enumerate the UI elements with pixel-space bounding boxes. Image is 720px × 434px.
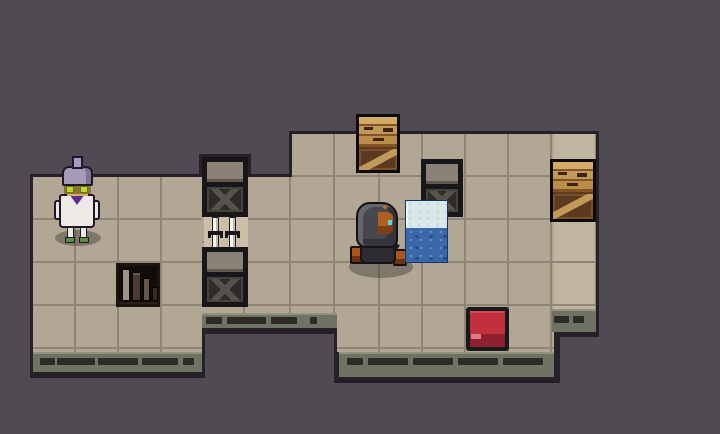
wizard-hair-bun [72,156,83,169]
glasses-lens [80,186,88,193]
wall-vent-dash [573,316,584,323]
swords[interactable] [208,217,242,248]
hood-button [383,205,387,209]
crate-diagonal-brace [553,194,593,219]
wall-vent-dash [206,317,222,324]
crate-lower-panel [553,194,593,219]
ice-highlight [406,202,408,226]
crate-lower-panel [359,149,397,170]
sword-guard [225,231,240,235]
wall-vent-dash [458,358,498,365]
book-spine [132,272,141,301]
water-body [406,228,447,262]
crate-knot [558,172,567,175]
wizard-shoe [65,237,75,243]
button-highlight [471,334,481,339]
wall-vent-dash [368,358,408,365]
bookshelf[interactable] [116,263,160,307]
book-spine [152,287,158,301]
sword-guard [208,231,223,235]
floor-mid-notch [248,177,292,313]
floor-step-column [292,134,337,313]
wooden-crate-top[interactable] [356,114,400,173]
crate-lid [207,162,243,182]
button-top-face [470,311,505,334]
glasses-lens [66,186,74,193]
wall-vent-dash [227,317,266,324]
crate-x-panel [207,187,243,212]
player-eye [388,220,392,225]
wooden-crate-right[interactable] [550,159,596,222]
crate-knot [364,127,373,130]
water-block[interactable] [405,200,448,263]
wall-vent-dash [554,316,569,323]
wall-vent-dash [57,358,95,365]
sword-icon [212,217,219,248]
crate-knot [383,128,393,132]
book-spine [143,278,150,301]
wall-vent-dash [310,317,317,324]
wizard-glasses [64,185,91,194]
crate-knot [567,183,578,186]
wall-vent-dash [98,358,138,365]
wall-vent-dash [503,358,543,365]
crate-x-panel [207,277,243,302]
strip-corridor [202,313,337,328]
dark-crate-top[interactable] [202,157,248,217]
wall-vent-dash [347,358,363,365]
sprite-shadow [55,230,101,246]
wall-vent-dash [413,358,453,365]
wall-vent-dash [271,317,297,324]
crate-planks [553,162,593,192]
strip-left-room [33,352,202,372]
strip-main-room [339,352,554,377]
wall-vent-dash [183,358,194,365]
sword-icon [229,217,236,248]
crate-diagonal-brace [359,149,397,170]
crate-knot [373,138,384,141]
strip-right-column [552,309,596,332]
red-button[interactable] [466,307,509,351]
wizard-hair [62,166,93,186]
wizard-npc[interactable] [52,156,102,248]
crate-knot [577,173,587,177]
wall-vent-dash [142,358,178,365]
game-viewport [0,0,720,434]
crate-planks [359,117,397,147]
ice-surface [406,201,447,228]
dark-crate-bottom[interactable] [202,247,248,307]
crate-lid [207,252,243,272]
crate-lid [426,164,458,184]
book-spine [122,269,130,301]
wizard-shoe [79,237,89,243]
wall-vent-dash [40,358,55,365]
